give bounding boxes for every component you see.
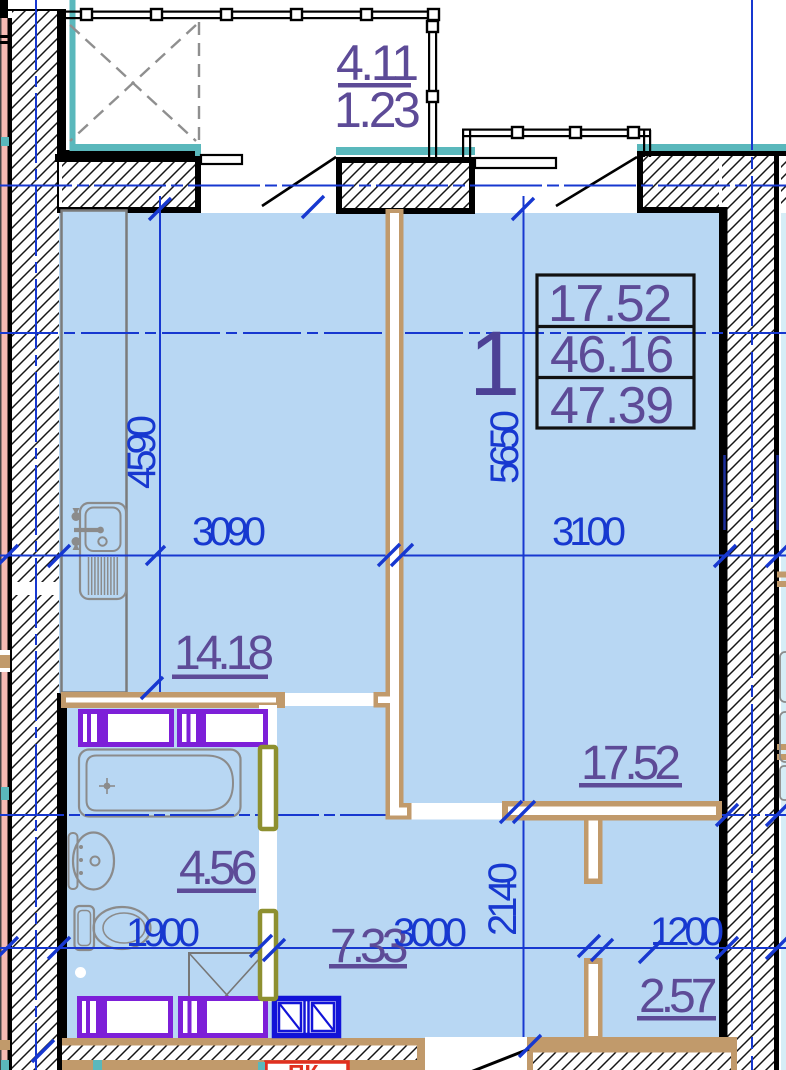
svg-text:1: 1 xyxy=(469,313,520,415)
svg-text:ПК: ПК xyxy=(288,1060,320,1070)
svg-text:17.52: 17.52 xyxy=(581,737,679,790)
svg-text:2.57: 2.57 xyxy=(639,970,716,1023)
svg-text:14.18: 14.18 xyxy=(174,627,272,680)
svg-text:4590: 4590 xyxy=(120,416,164,489)
svg-text:1900: 1900 xyxy=(126,911,199,955)
svg-text:2140: 2140 xyxy=(481,863,525,936)
svg-text:47.39: 47.39 xyxy=(550,377,673,435)
svg-text:4.56: 4.56 xyxy=(179,842,256,895)
svg-text:46.16: 46.16 xyxy=(550,326,673,384)
svg-text:1200: 1200 xyxy=(650,910,723,954)
svg-text:3090: 3090 xyxy=(192,510,265,554)
svg-text:3000: 3000 xyxy=(393,911,466,955)
svg-text:3100: 3100 xyxy=(552,510,625,554)
svg-text:17.52: 17.52 xyxy=(548,275,671,333)
svg-text:1.23: 1.23 xyxy=(334,82,419,138)
svg-text:5650: 5650 xyxy=(483,411,527,484)
